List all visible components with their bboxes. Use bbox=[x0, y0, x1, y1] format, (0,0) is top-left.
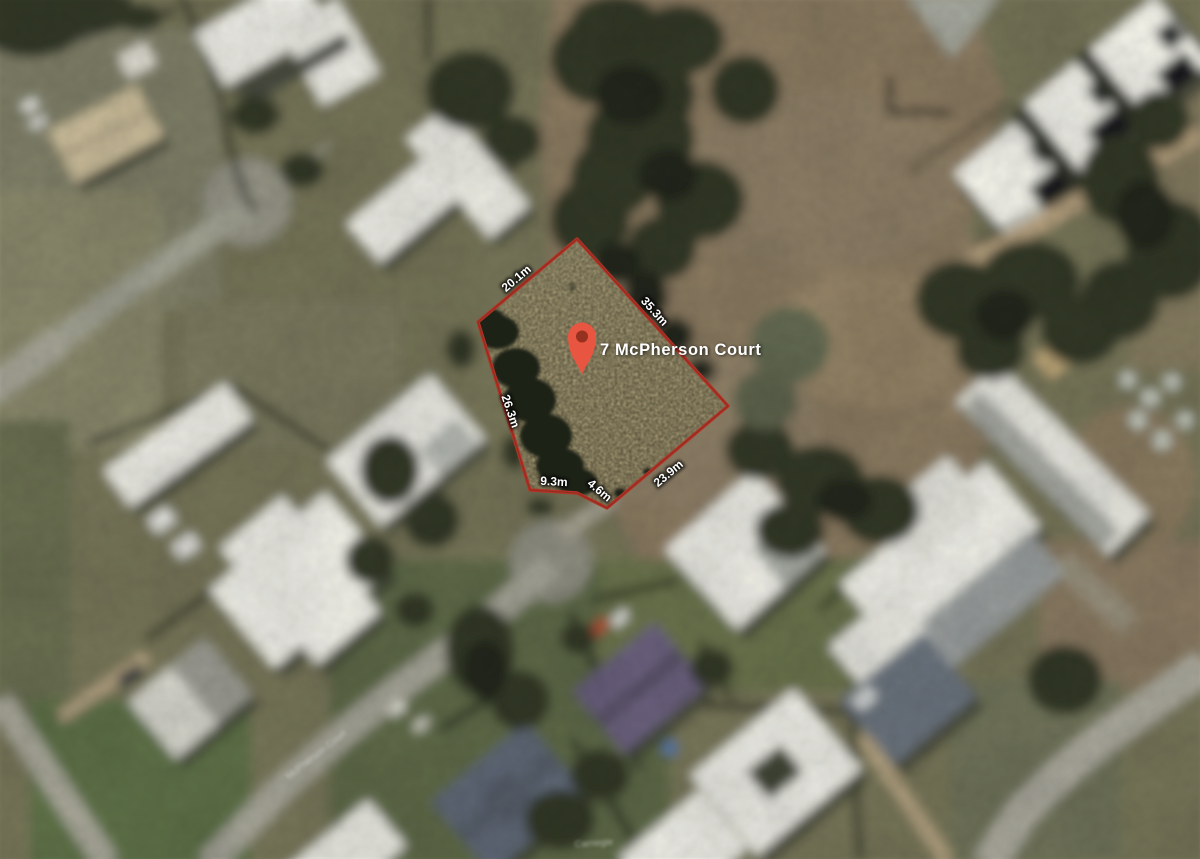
svg-text:9.3m: 9.3m bbox=[540, 474, 568, 489]
svg-text:7 McPherson Court: 7 McPherson Court bbox=[600, 341, 761, 359]
